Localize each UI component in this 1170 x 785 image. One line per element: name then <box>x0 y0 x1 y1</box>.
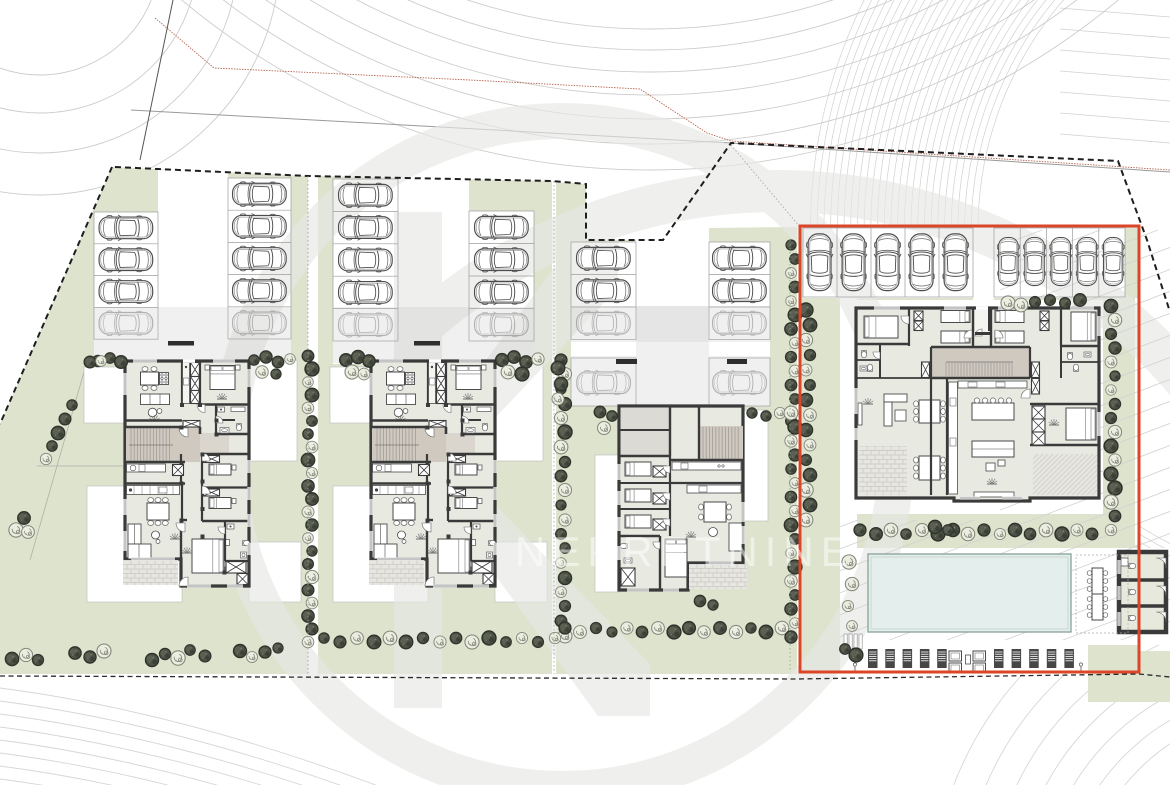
svg-text:NEKRETNINE: NEKRETNINE <box>515 528 856 575</box>
